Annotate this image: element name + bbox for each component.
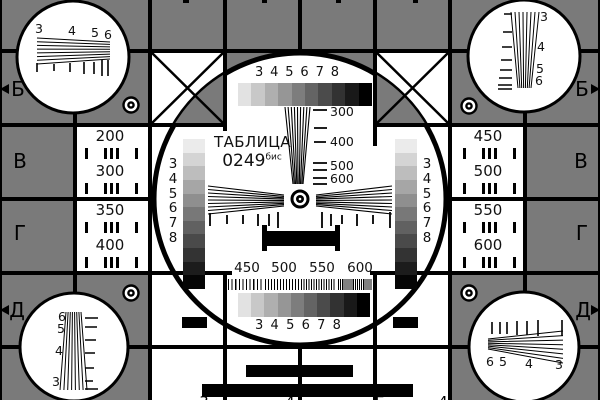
corner-wedge-label: 5 xyxy=(497,355,509,368)
target-top-right xyxy=(462,99,477,114)
corner-wedge-label: 5 xyxy=(89,26,101,39)
target-top-left xyxy=(124,98,139,113)
grayscale-bottom-labels: 3 4 5 6 7 8 xyxy=(255,319,341,333)
grayscale-label: 6 xyxy=(300,66,308,80)
wedge-label: 4 xyxy=(166,172,180,186)
wedge-label: 8 xyxy=(420,231,434,245)
corner-wedge-label: 4 xyxy=(523,357,535,370)
wedge-label: 8 xyxy=(166,231,180,245)
black-reference-bar xyxy=(265,231,337,246)
cropped-bottom-glyph: 4 xyxy=(436,396,450,400)
black-square-right xyxy=(393,317,418,328)
frequency-burst-strip xyxy=(228,279,372,290)
cropped-glyph-fragment xyxy=(413,0,418,3)
wedge-label: 7 xyxy=(166,216,180,230)
card-code-number: 0249 xyxy=(222,151,265,171)
row-letter-left-d: Д xyxy=(7,299,27,321)
cropped-bottom-glyph: Б xyxy=(373,396,387,400)
bottom-short-bar xyxy=(246,365,353,377)
corner-wedge-label: 4 xyxy=(535,40,547,53)
corner-wedge-label: 5 xyxy=(55,322,67,335)
grayscale-strip-bottom xyxy=(238,293,370,317)
resolution-number: 200 xyxy=(85,129,135,144)
freq-label-400: 400 xyxy=(330,136,354,148)
grayscale-top-labels: 3 4 5 6 7 8 xyxy=(255,66,339,80)
row-letter-right-b: Б xyxy=(572,78,592,100)
corner-wedge-label: 3 xyxy=(50,375,62,388)
resolution-number: 550 xyxy=(463,203,513,218)
grayscale-label: 7 xyxy=(316,66,324,80)
freq-label-600: 600 xyxy=(330,173,354,185)
resolution-tick-row xyxy=(84,148,138,159)
target-bottom-right xyxy=(462,286,477,301)
right-pointer-icon xyxy=(591,84,600,94)
wedge-label: 5 xyxy=(420,187,434,201)
resolution-number: 300 xyxy=(85,164,135,179)
corner-wedge-label: 3 xyxy=(553,358,565,371)
cropped-glyph-fragment xyxy=(183,0,189,3)
left-grayscale-wedge xyxy=(183,139,205,289)
grayscale-strip-top xyxy=(238,83,372,106)
wedge-label: 7 xyxy=(420,216,434,230)
grayscale-label: 4 xyxy=(271,319,279,333)
top-left-circle xyxy=(17,1,129,113)
resolution-number: 600 xyxy=(463,238,513,253)
card-title: ТАБЛИЦА xyxy=(214,133,288,151)
right-grayscale-wedge xyxy=(395,139,417,289)
corner-wedge-label: 6 xyxy=(484,355,496,368)
resolution-tick-row xyxy=(84,257,138,268)
wedge-label: 3 xyxy=(166,157,180,171)
wedge-label: 3 xyxy=(420,157,434,171)
card-code-suffix: бис xyxy=(265,152,281,162)
cropped-bottom-glyph: 3 xyxy=(197,396,211,400)
resolution-tick-row xyxy=(84,222,138,233)
row-letter-left-g: Г xyxy=(10,222,30,244)
grayscale-label: 4 xyxy=(270,66,278,80)
corner-wedge-label: 3 xyxy=(33,22,45,35)
resolution-number: 400 xyxy=(85,238,135,253)
wedge-label: 5 xyxy=(166,187,180,201)
resolution-tick-row xyxy=(462,222,516,233)
bottom-left-circle xyxy=(20,293,128,400)
grayscale-label: 6 xyxy=(302,319,310,333)
row-letter-left-v: В xyxy=(10,150,30,172)
grayscale-label: 3 xyxy=(255,66,263,80)
corner-wedge-label: 6 xyxy=(102,28,114,41)
resolution-number: 500 xyxy=(463,164,513,179)
resolution-tick-row xyxy=(84,183,138,194)
burst-label: 550 xyxy=(303,261,341,275)
black-bar-right-cap xyxy=(335,225,340,251)
target-bottom-left xyxy=(124,286,139,301)
resolution-number: 450 xyxy=(463,129,513,144)
cropped-glyph-fragment xyxy=(336,0,341,3)
grayscale-label: 3 xyxy=(255,319,263,333)
top-right-circle xyxy=(468,0,580,112)
burst-label: 600 xyxy=(341,261,379,275)
card-code: 0249бис xyxy=(222,151,282,171)
wedge-label: 4 xyxy=(420,172,434,186)
grayscale-label: 5 xyxy=(286,319,294,333)
corner-wedge-label: 4 xyxy=(53,344,65,357)
row-letter-right-g: Г xyxy=(572,222,592,244)
grayscale-label: 8 xyxy=(333,319,341,333)
resolution-tick-row xyxy=(462,148,516,159)
corner-wedge-label: 3 xyxy=(538,10,550,23)
row-letter-right-d: Д xyxy=(573,299,593,321)
freq-label-300: 300 xyxy=(330,106,354,118)
test-pattern-graphics xyxy=(0,0,600,400)
grayscale-label: 7 xyxy=(317,319,325,333)
grayscale-label: 5 xyxy=(285,66,293,80)
tv-test-card-0249: ТАБЛИЦА 0249бис 3 4 5 6 7 8 300 400 500 … xyxy=(0,0,600,400)
black-bar-left-cap xyxy=(262,225,267,251)
wedge-label: 6 xyxy=(166,201,180,215)
right-pointer-icon xyxy=(591,305,600,315)
grayscale-label: 8 xyxy=(331,66,339,80)
black-square-left xyxy=(182,317,207,328)
row-letter-left-b: Б xyxy=(8,78,28,100)
corner-wedge-label: 6 xyxy=(533,74,545,87)
resolution-tick-row xyxy=(462,257,516,268)
corner-wedge-label: 4 xyxy=(66,24,78,37)
burst-label: 450 xyxy=(228,261,266,275)
burst-label: 500 xyxy=(265,261,303,275)
row-letter-right-v: В xyxy=(571,150,591,172)
resolution-tick-row xyxy=(462,183,516,194)
bottom-right-circle xyxy=(469,292,579,400)
cropped-glyph-fragment xyxy=(262,0,267,3)
center-bullseye xyxy=(292,191,308,207)
cropped-bottom-glyph: 4 xyxy=(283,396,297,400)
wedge-label: 6 xyxy=(420,201,434,215)
resolution-number: 350 xyxy=(85,203,135,218)
